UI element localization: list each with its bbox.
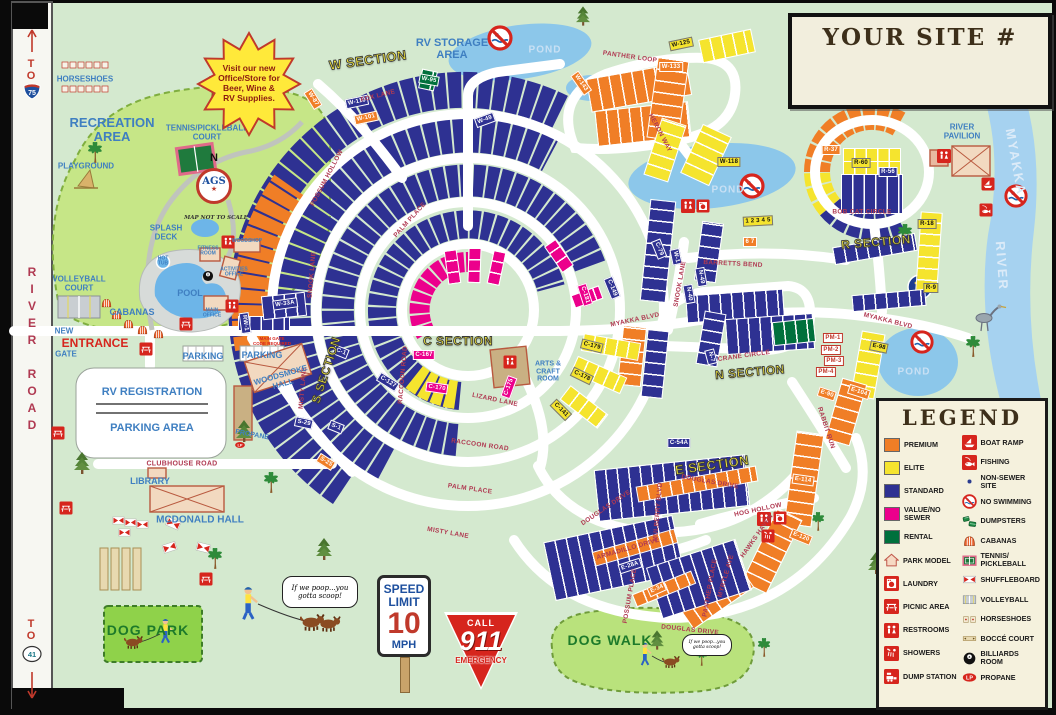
scoop-speech-bubble: If we poop...you gotta scoop! — [282, 576, 358, 608]
legend-label: PROPANE — [981, 674, 1016, 682]
picnic-area-icon — [200, 573, 213, 586]
legend-right-column: BOAT RAMPFISHINGNON-SEWER SITENO SWIMMIN… — [962, 433, 1041, 688]
splash-deck-label: SPLASH DECK — [150, 224, 182, 241]
volleyball-label: VOLLEYBALL COURT — [52, 275, 105, 292]
parking-area-label: PARKING AREA — [110, 422, 194, 434]
mcdonald-hall-label: MCDONALD HALL — [156, 515, 244, 526]
your-site-panel: YOUR SITE # — [788, 13, 1052, 109]
legend-item: ELITE — [884, 456, 959, 479]
svg-text:41: 41 — [28, 650, 36, 659]
legend-item: DUMPSTERS — [962, 511, 1041, 531]
pond-label: POND — [712, 185, 745, 196]
site-R-9: R-9 — [923, 283, 938, 293]
pond-label: POND — [529, 45, 562, 56]
main-office-label: MAIN OFFICE — [203, 309, 221, 320]
legend-label: NO SWIMMING — [981, 498, 1032, 506]
parking-label: PARKING — [183, 351, 224, 361]
site-R-56: R-56 — [879, 167, 898, 177]
site-R-60: R-60 — [852, 158, 871, 168]
legend-item: SHUFFLEBOARD — [962, 570, 1041, 590]
legend-item: RESTROOMS — [884, 619, 959, 642]
legend-label: PICNIC AREA — [903, 603, 949, 611]
legend-item: TENNIS/ PICKLEBALL — [962, 551, 1041, 571]
legend-label: FISHING — [981, 458, 1010, 466]
pond-label: POND — [898, 367, 931, 378]
cabanas-icon — [962, 533, 977, 548]
speed-limit-sign: SPEED LIMIT 10 MPH — [377, 575, 431, 657]
svg-text:75: 75 — [28, 90, 36, 97]
legend-item: NON-SEWER SITE — [962, 472, 1041, 492]
emergency-911-sign: CALL 911 EMERGENCY — [444, 612, 518, 690]
legend-item: BILLIARDS ROOM — [962, 649, 1041, 669]
dump-icon — [884, 669, 899, 684]
gate-label: GATE — [55, 350, 77, 359]
legend-item: PROPANE — [962, 668, 1041, 688]
picnic-area-icon — [60, 502, 73, 515]
pool-label: POOL — [177, 288, 203, 298]
legend-label: ELITE — [904, 464, 924, 472]
shuffleboard-icon — [962, 572, 977, 587]
emergency-label: EMERGENCY — [444, 656, 518, 665]
legend-label: DUMP STATION — [903, 673, 957, 681]
sign-post — [400, 657, 410, 693]
sw-rental-icon — [884, 530, 900, 544]
hot-tub-label: HOT TUB — [158, 257, 169, 268]
legend-label: DUMPSTERS — [981, 517, 1026, 525]
park-model-icon — [884, 553, 899, 568]
dog-park-label: DOG PARK — [107, 622, 189, 638]
showers-icon — [884, 646, 899, 661]
legend-label: HORSESHOES — [981, 615, 1032, 623]
restrooms-icon — [884, 623, 899, 638]
horseshoes-label: HORSESHOES — [57, 75, 113, 84]
picnic-area-icon — [52, 427, 65, 440]
site-C-54A: C-54A — [667, 438, 690, 448]
legend-label: PREMIUM — [904, 441, 938, 449]
restrooms-icon — [226, 300, 239, 313]
site-PM-1: PM-1 — [823, 333, 843, 343]
legend-label: VALUE/NO SEWER — [904, 506, 941, 522]
activities-office-label: ACTIVITIES OFFICE — [220, 268, 248, 279]
legend-label: CABANAS — [981, 537, 1017, 545]
arts-craft-label: ARTS & CRAFT ROOM — [535, 361, 561, 384]
fishing-icon — [962, 455, 977, 470]
dumpsters-icon — [962, 514, 977, 529]
911-number: 911 — [444, 626, 518, 657]
site-6-7: 6 7 — [743, 237, 757, 247]
sw-standard-icon — [884, 484, 900, 498]
road-label: CLUBHOUSE ROAD — [146, 461, 217, 468]
restrooms-icon — [681, 199, 695, 213]
picnic-area-icon — [180, 318, 193, 331]
legend-item: PARK MODEL — [884, 549, 959, 572]
woodshop-label: WOODSHOP — [232, 238, 262, 244]
site-R-18: R-18 — [918, 219, 937, 229]
picnic-area-icon — [140, 343, 153, 356]
parking-label: PARKING — [242, 350, 283, 360]
boat-ramp-icon — [962, 435, 977, 450]
map-scale-note: MAP NOT TO SCALE — [184, 215, 248, 221]
no-swim-icon — [962, 494, 977, 509]
bocce-icon — [962, 631, 977, 646]
library-label: LIBRARY — [130, 476, 170, 486]
restrooms-icon — [937, 149, 951, 163]
rv-registration-label: RV REGISTRATION — [102, 386, 202, 398]
laundry-icon — [884, 576, 899, 591]
legend-label: NON-SEWER SITE — [981, 474, 1041, 490]
propane-icon — [962, 670, 977, 685]
legend-item: HORSESHOES — [962, 609, 1041, 629]
picnic-icon — [884, 599, 899, 614]
cabanas-label: CABANAS — [110, 307, 155, 317]
legend-title: LEGEND — [884, 405, 1040, 430]
legend-label: RENTAL — [904, 533, 933, 541]
legend-item: VOLLEYBALL — [962, 590, 1041, 610]
legend-item: STANDARD — [884, 479, 959, 502]
dog-walk-label: DOG WALK — [568, 632, 653, 648]
site-R-37: R-37 — [822, 145, 841, 155]
legend-item: SHOWERS — [884, 642, 959, 665]
legend-item: CABANAS — [962, 531, 1041, 551]
horseshoes-icon — [962, 612, 977, 627]
new-label: NEW — [55, 327, 74, 336]
legend-label: VOLLEYBALL — [981, 596, 1029, 604]
to-41-label: TO — [25, 618, 37, 642]
restrooms-icon — [504, 356, 517, 369]
volleyball-court — [58, 296, 100, 318]
road-label: BOB CAT CIRCLE — [832, 209, 891, 216]
legend-label: PARK MODEL — [903, 557, 951, 565]
legend-label: BILLIARDS ROOM — [981, 650, 1041, 666]
sw-premium-icon — [884, 438, 900, 452]
site-C-167: C-167 — [413, 350, 435, 360]
sw-elite-icon — [884, 461, 900, 475]
speed-limit-unit: MPH — [380, 639, 428, 651]
legend-item: RENTAL — [884, 526, 959, 549]
volleyball-icon — [962, 592, 977, 607]
your-site-title: YOUR SITE # — [792, 24, 1048, 51]
fitness-room-label: FITNESS ROOM — [197, 247, 218, 258]
site-1-2-3-4-5: 1 2 3 4 5 — [743, 215, 774, 227]
legend-left-column: PREMIUMELITESTANDARDVALUE/NO SEWERRENTAL… — [884, 433, 959, 688]
site-PM-3: PM-3 — [824, 356, 844, 366]
to-75-label: TO — [25, 58, 37, 82]
sw-value_no_sewer-icon — [884, 507, 900, 521]
site-W-133: W-133 — [659, 62, 683, 72]
legend-item: PREMIUM — [884, 433, 959, 456]
legend-item: LAUNDRY — [884, 572, 959, 595]
entrance-label: ENTRANCE — [62, 336, 129, 350]
route-41-shield: 41 — [23, 647, 41, 662]
legend-label: SHOWERS — [903, 649, 940, 657]
river-pavilion-label: RIVER PAVILION — [944, 123, 981, 140]
playground-label: PLAYGROUND — [58, 162, 114, 171]
compass-icon: AGS★ — [196, 168, 232, 204]
laundry-icon — [774, 512, 787, 525]
no-swimming-icon — [487, 25, 513, 51]
tennis-icon — [962, 553, 977, 568]
site-PM-2: PM-2 — [821, 345, 841, 355]
office-store-burst-text: Visit our new Office/Store for Beer, Win… — [196, 31, 302, 137]
section-label-c: C SECTION — [423, 334, 493, 348]
legend-label: BOCCÉ COURT — [981, 635, 1035, 643]
site-PM-4: PM-4 — [816, 367, 836, 377]
laundry-icon — [697, 200, 710, 213]
lot-block — [772, 318, 816, 346]
legend-label: TENNIS/ PICKLEBALL — [981, 552, 1027, 568]
nonsewer-icon — [962, 474, 977, 489]
legend-item: BOCCÉ COURT — [962, 629, 1041, 649]
billiards-icon — [202, 270, 215, 283]
billiards-icon — [962, 651, 977, 666]
scoop-speech-bubble: If we poop...you gotta scoop! — [682, 634, 732, 656]
boat-ramp-icon — [982, 178, 995, 191]
site-W-118: W-118 — [717, 157, 740, 167]
legend-label: STANDARD — [904, 487, 944, 495]
no-swimming-icon — [910, 330, 934, 354]
legend-item: PICNIC AREA — [884, 595, 959, 618]
main-gate-note: MAIN GATE CODE REQUIRED — [253, 337, 291, 347]
legend-item: NO SWIMMING — [962, 492, 1041, 512]
lot-block — [467, 247, 481, 283]
legend-item: FISHING — [962, 453, 1041, 473]
legend-label: LAUNDRY — [903, 580, 938, 588]
legend-item: VALUE/NO SEWER — [884, 503, 959, 526]
legend-item: BOAT RAMP — [962, 433, 1041, 453]
office-store-burst: Visit our new Office/Store for Beer, Win… — [196, 31, 302, 137]
legend-label: SHUFFLEBOARD — [981, 576, 1041, 584]
compass-north-label: N — [210, 152, 218, 164]
legend-label: RESTROOMS — [903, 626, 949, 634]
recreation-area-label: RECREATION AREA — [70, 116, 155, 144]
speed-limit-value: 10 — [380, 609, 428, 639]
propane-icon — [233, 440, 248, 451]
fishing-icon — [980, 204, 993, 217]
campground-map: 8 LP 75 41 W SE — [0, 0, 1056, 715]
legend-label: BOAT RAMP — [981, 439, 1024, 447]
legend-item: DUMP STATION — [884, 665, 959, 688]
road-label-river-road: RIVER ROAD — [25, 265, 39, 435]
legend-panel: LEGEND PREMIUMELITESTANDARDVALUE/NO SEWE… — [876, 398, 1048, 710]
rv-storage-label: RV STORAGE AREA — [416, 38, 488, 62]
compass-star: ★ — [199, 187, 229, 192]
